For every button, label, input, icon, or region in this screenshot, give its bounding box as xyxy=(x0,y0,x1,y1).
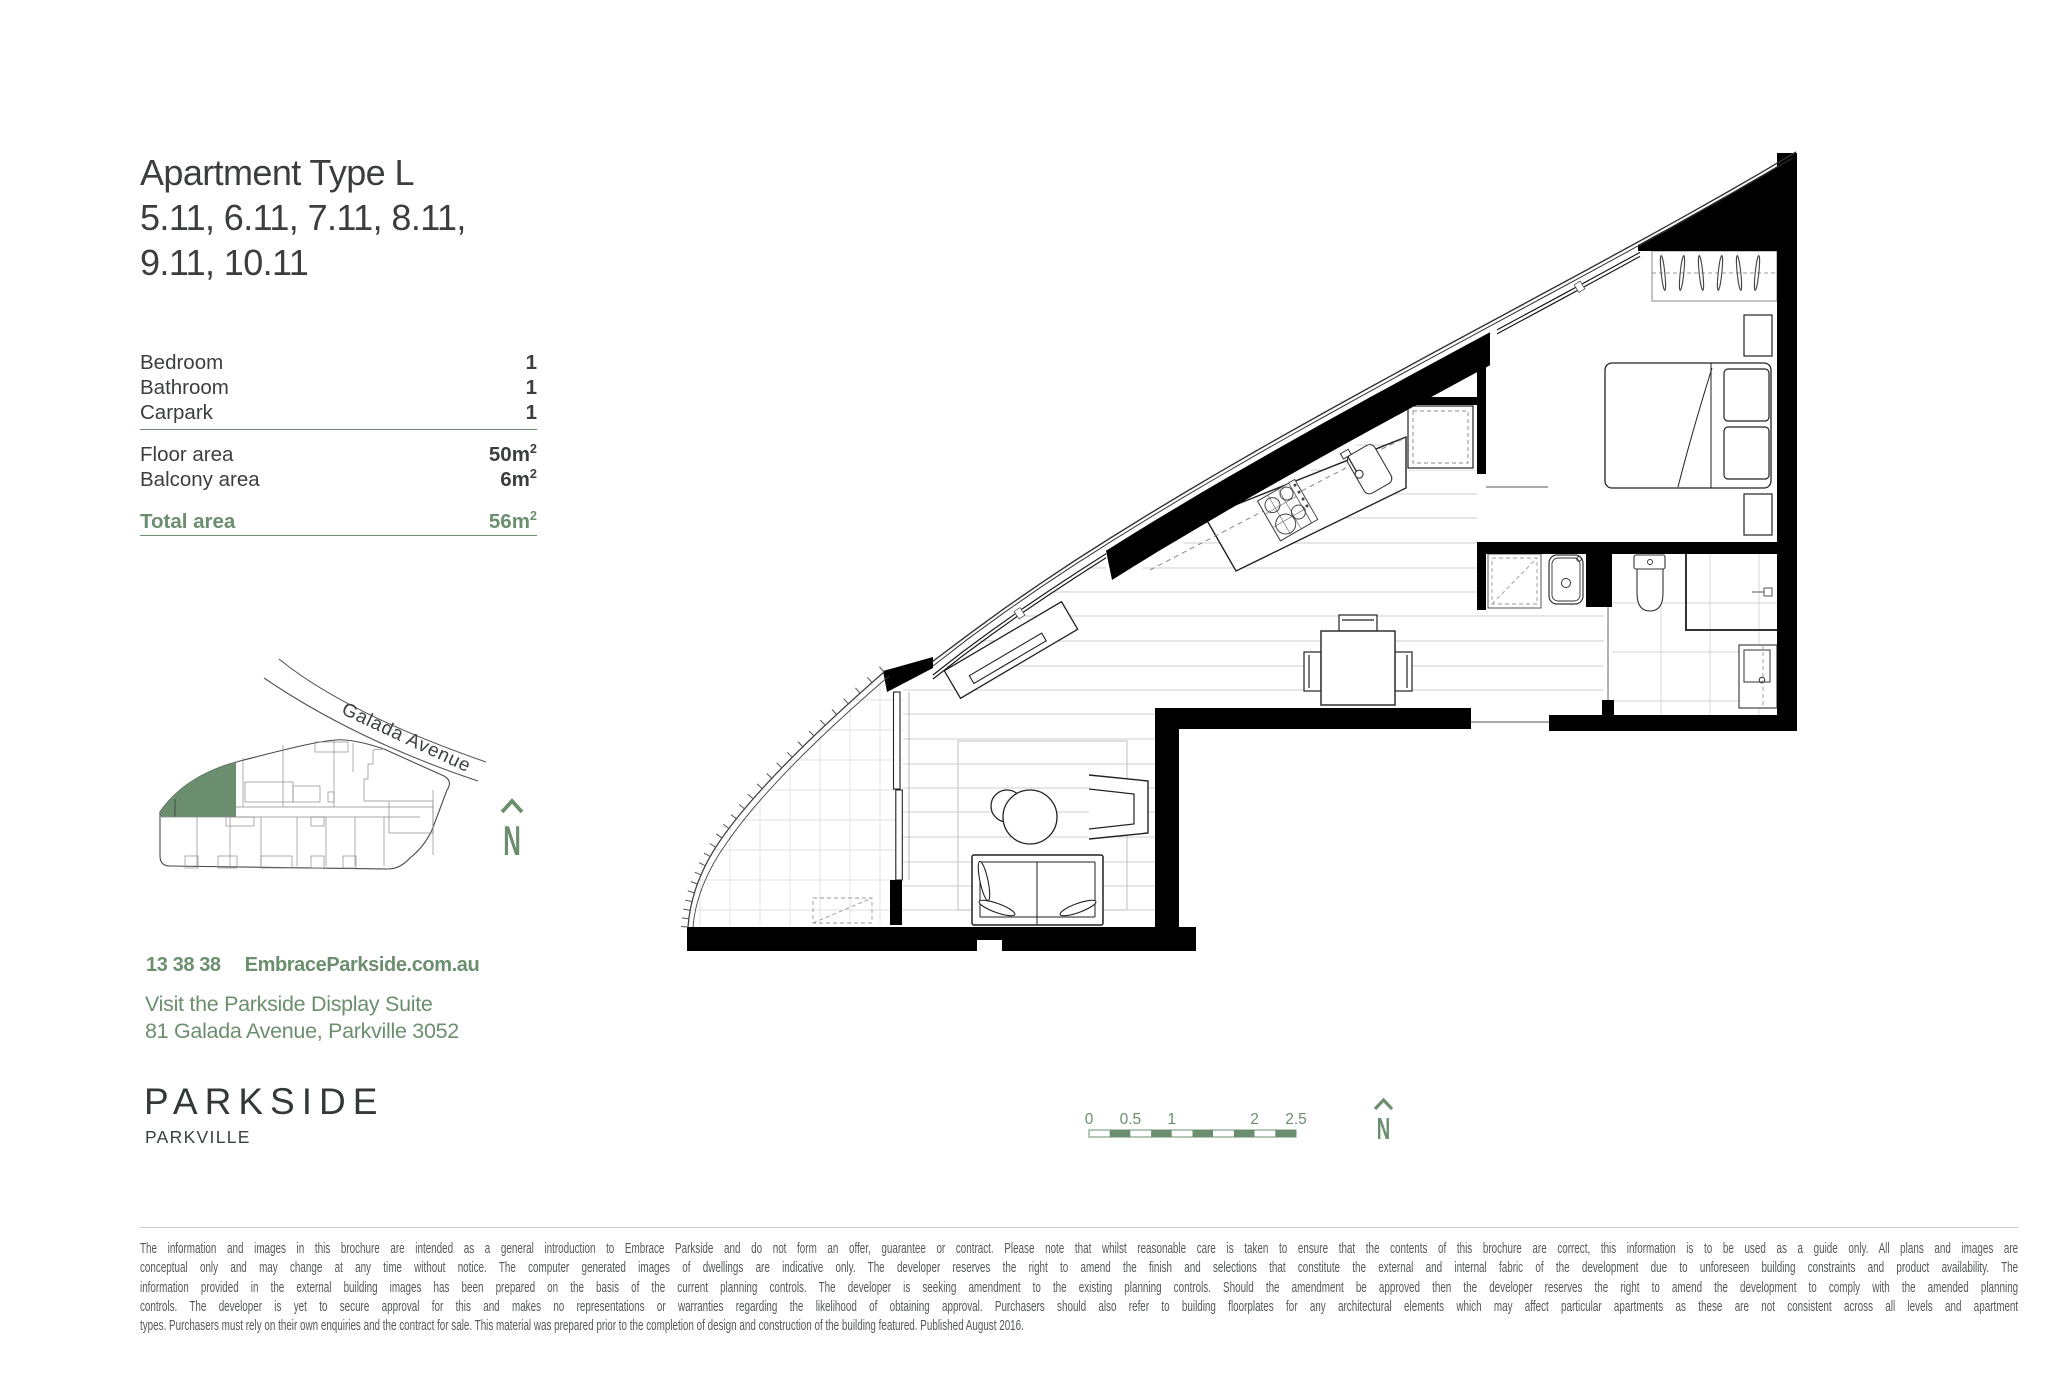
svg-text:0: 0 xyxy=(1085,1111,1094,1128)
svg-text:Galada Avenue: Galada Avenue xyxy=(338,699,474,777)
svg-text:1: 1 xyxy=(1167,1111,1176,1128)
svg-text:2.5: 2.5 xyxy=(1285,1111,1307,1128)
svg-text:N: N xyxy=(503,818,521,864)
svg-text:0.5: 0.5 xyxy=(1120,1111,1142,1128)
svg-text:N: N xyxy=(1377,1112,1390,1146)
svg-text:2: 2 xyxy=(1250,1111,1259,1128)
